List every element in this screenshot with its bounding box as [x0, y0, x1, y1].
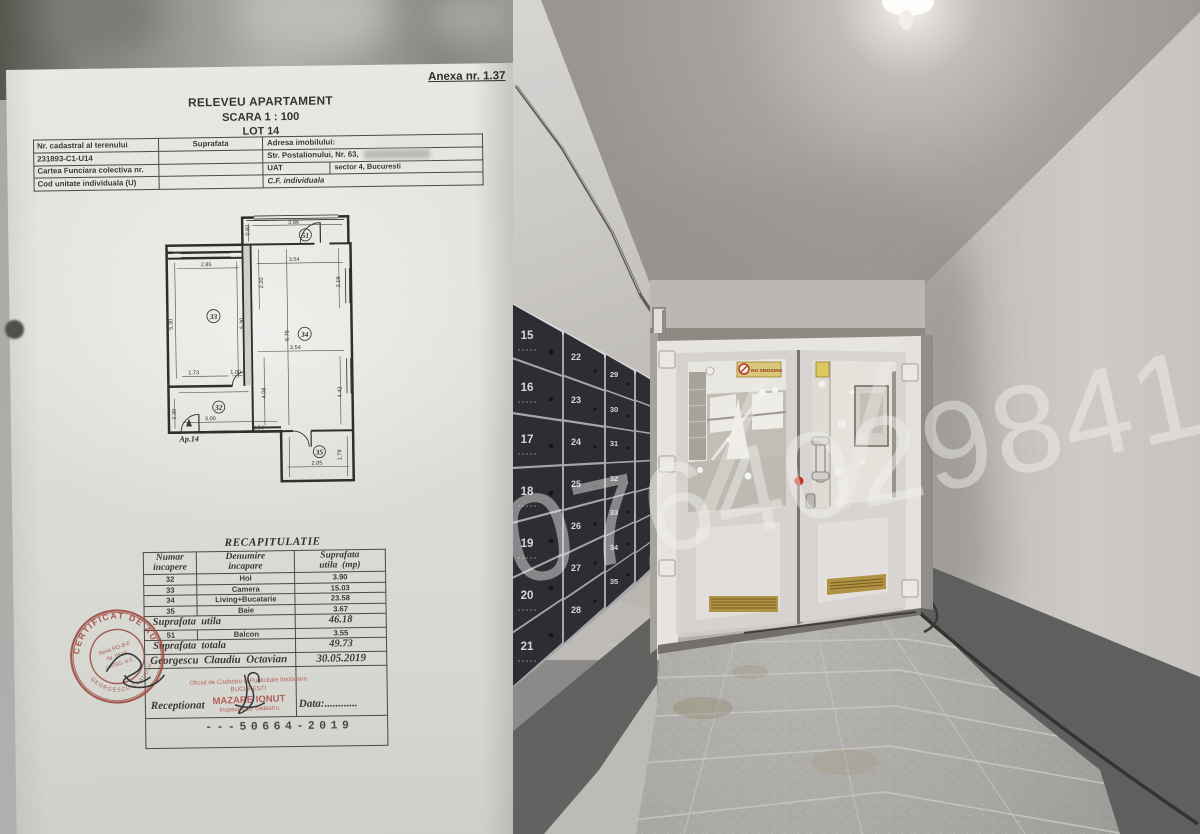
- svg-text:35: 35: [315, 448, 324, 457]
- svg-text:Ap.14: Ap.14: [178, 434, 198, 443]
- svg-text:1.30: 1.30: [172, 409, 178, 420]
- svg-text:1.00: 1.00: [230, 370, 241, 376]
- svg-text:BUCURESTI: BUCURESTI: [230, 685, 266, 693]
- svg-text:2.85: 2.85: [201, 262, 212, 268]
- svg-text:6.75: 6.75: [285, 330, 291, 341]
- svg-text:3.54: 3.54: [290, 345, 301, 351]
- svg-text:2.05: 2.05: [311, 461, 322, 467]
- svg-text:33: 33: [209, 312, 218, 321]
- svg-text:2.19: 2.19: [336, 276, 342, 287]
- svg-text:1.79: 1.79: [337, 449, 343, 460]
- svg-text:0.92: 0.92: [245, 225, 251, 236]
- svg-text:3.86: 3.86: [288, 220, 299, 226]
- svg-text:4.08: 4.08: [261, 387, 267, 398]
- svg-text:32: 32: [214, 403, 223, 412]
- svg-text:2.20: 2.20: [259, 278, 265, 289]
- svg-text:5.30: 5.30: [239, 318, 245, 329]
- svg-text:5.30: 5.30: [168, 319, 174, 330]
- svg-text:51: 51: [302, 231, 310, 240]
- svg-text:3.54: 3.54: [289, 257, 300, 263]
- svg-text:6.54: 6.54: [253, 425, 264, 431]
- svg-text:1.73: 1.73: [188, 370, 199, 376]
- svg-text:34: 34: [300, 330, 309, 339]
- svg-text:4.42: 4.42: [337, 386, 343, 397]
- svg-text:3.00: 3.00: [205, 416, 216, 422]
